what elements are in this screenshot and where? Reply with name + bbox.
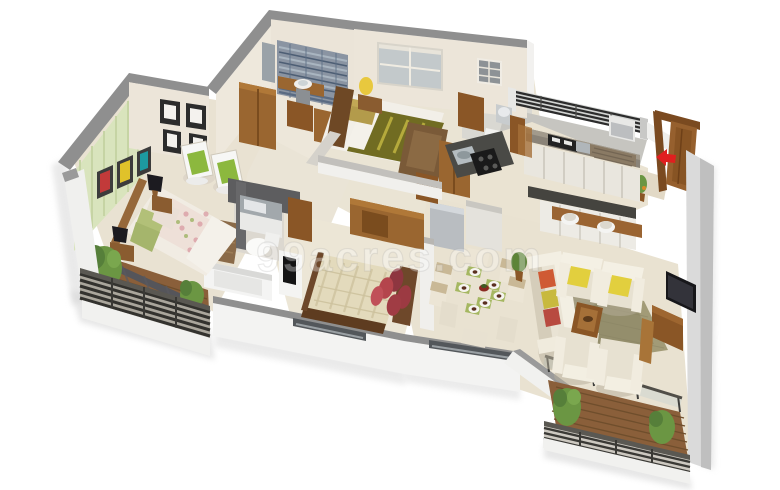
svg-text:99acres.com: 99acres.com [256, 233, 544, 280]
